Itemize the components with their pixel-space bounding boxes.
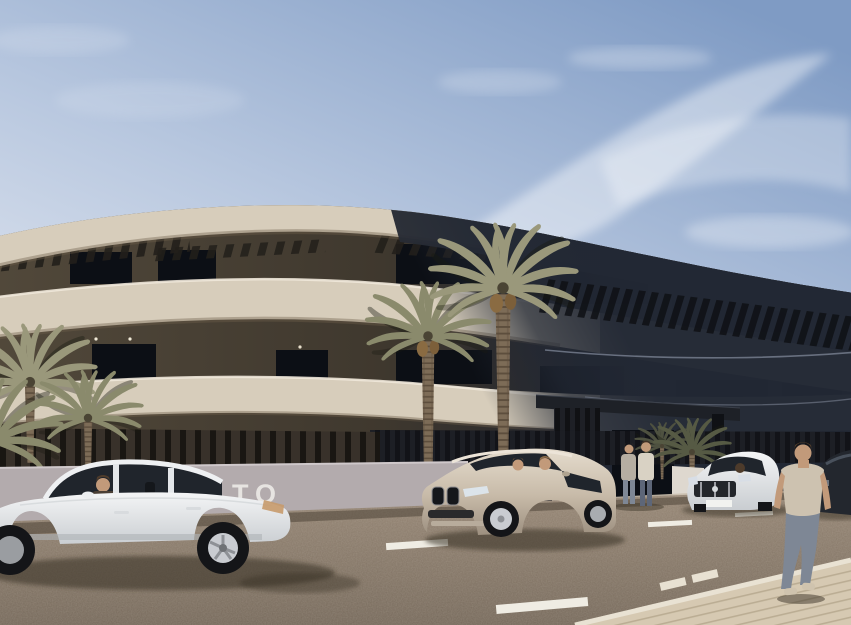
walking-man-shirt [781, 463, 824, 516]
man-leg [647, 480, 652, 506]
sedan-driver-head [96, 478, 110, 492]
cloud-wisp [438, 70, 562, 94]
sedan-door-handle [114, 511, 129, 514]
sedan-door-handle [186, 507, 201, 510]
suv-shadow [425, 529, 625, 551]
suv-grille-kidney [447, 487, 459, 505]
window [92, 344, 156, 382]
suv-bumper-intake [428, 510, 474, 518]
walking-man-shadow [777, 594, 825, 604]
woman-leg [630, 480, 635, 504]
cloud-wisp [568, 47, 712, 69]
mercedes-wheel [758, 502, 772, 511]
sedan-shadow-tail [240, 573, 360, 593]
scene-root: TO [0, 0, 851, 625]
wall-light [128, 337, 131, 340]
walking-man-head [795, 445, 812, 462]
walking-man-shoe-right [802, 583, 815, 591]
suv-passenger-head [513, 460, 524, 471]
suv-rear-rim [590, 506, 606, 522]
woman-head [625, 445, 634, 454]
suv-driver-head [539, 458, 551, 470]
man-leg [640, 480, 645, 506]
sedan-headrest [145, 482, 155, 494]
wall-light [94, 337, 97, 340]
cloud-bank [685, 216, 851, 248]
woman-leg [623, 480, 628, 504]
suv-bumper-lip [431, 521, 489, 526]
suv-side-mirror [562, 472, 570, 477]
suv-front-hub [498, 516, 505, 523]
cloud-wisp [55, 82, 245, 118]
mercedes-star-emblem [712, 486, 718, 492]
woman-torso [621, 454, 636, 481]
sedan-rear-hub [219, 544, 227, 552]
sedan-mirror [82, 492, 94, 499]
suv-grille-kidney [432, 487, 444, 505]
couple-shadow [612, 503, 664, 511]
mercedes-driver-head [735, 463, 745, 473]
mercedes-license-plate [706, 500, 732, 507]
mercedes-wheel [694, 504, 706, 512]
mercedes-headlight-right [738, 474, 751, 482]
man-torso [638, 453, 654, 481]
architectural-rendering: TO [0, 0, 851, 625]
wall-light [298, 345, 301, 348]
